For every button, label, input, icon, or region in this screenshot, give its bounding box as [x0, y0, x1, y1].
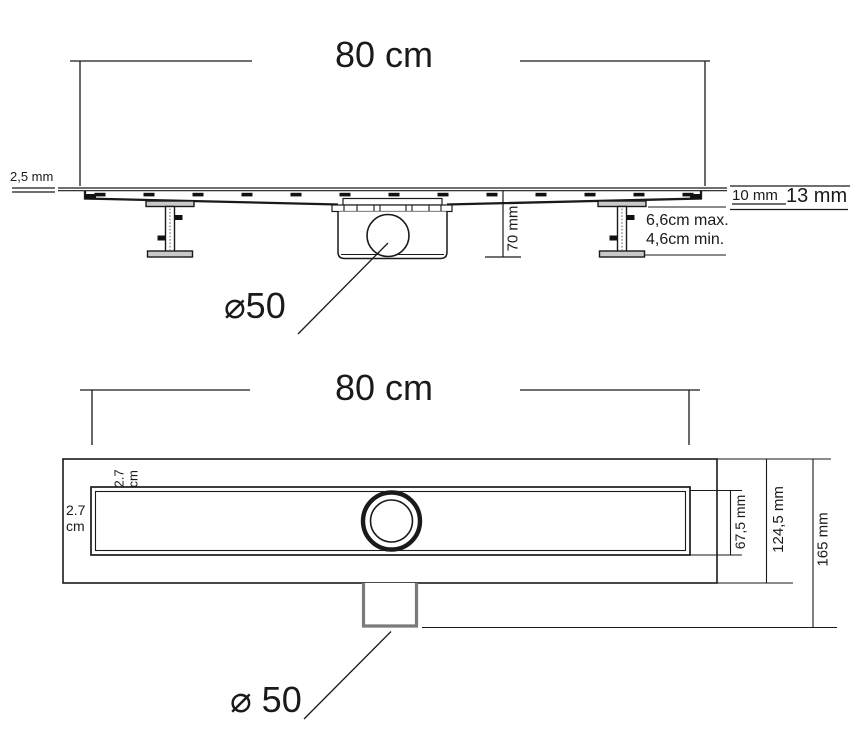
label-length-plan: 80 cm	[329, 369, 439, 407]
channel-left-endcap	[85, 194, 96, 200]
label-outlet-diameter-plan: ⌀ 50	[230, 681, 302, 719]
left-foot	[146, 201, 194, 257]
label-side-gap: 2.7 cm	[66, 502, 85, 534]
grate-clips	[95, 193, 694, 197]
label-trap-height: 70 mm	[506, 199, 523, 259]
label-top-gap: 2.7 cm	[113, 456, 142, 488]
side-view	[12, 61, 850, 334]
plan-channel	[91, 487, 690, 555]
outlet-circle-side	[367, 215, 409, 257]
plan-view	[63, 390, 837, 719]
siphon-trap	[332, 199, 452, 259]
label-flange-width: 124,5 mm	[771, 477, 788, 562]
leader-line-plan-outlet	[304, 632, 391, 720]
label-total-width: 165 mm	[816, 505, 833, 575]
label-frame-edge: 13 mm	[786, 186, 847, 207]
drawing-linework	[0, 0, 862, 730]
label-plate-thickness: 2,5 mm	[10, 170, 53, 184]
label-feet-min: 4,6cm min.	[646, 232, 724, 249]
label-channel-width: 67,5 mm	[733, 487, 749, 557]
grate-plate	[58, 188, 727, 191]
label-length-side: 80 cm	[329, 36, 439, 74]
technical-drawing-shower-drain: 80 cm 2,5 mm 10 mm 13 mm 6,6cm max. 4,6c…	[0, 0, 862, 730]
plan-outlet-box	[364, 583, 417, 626]
label-grate-edge: 10 mm	[732, 188, 778, 204]
dim-80cm-side	[70, 61, 710, 186]
plate-thickness-callout	[12, 188, 55, 192]
label-feet-max: 6,6cm max.	[646, 213, 729, 230]
right-foot	[598, 201, 646, 257]
label-outlet-diameter-side: ⌀50	[224, 287, 286, 325]
